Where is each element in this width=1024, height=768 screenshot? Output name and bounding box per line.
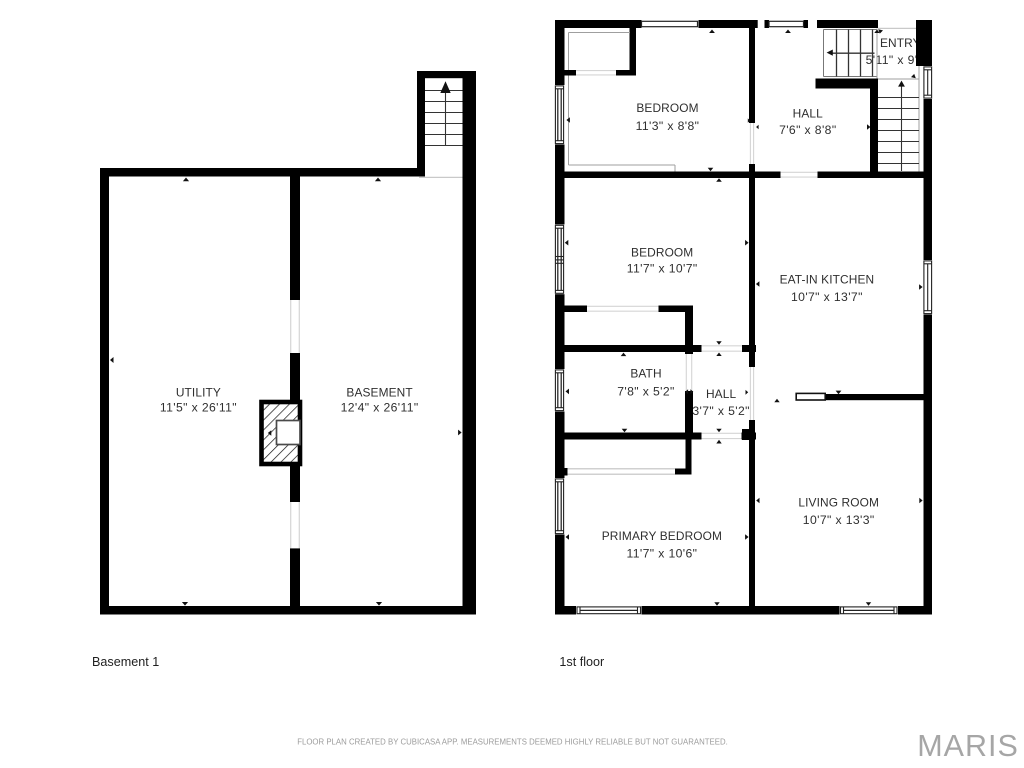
svg-text:11'7" x 10'6": 11'7" x 10'6": [626, 546, 697, 560]
svg-text:BATH: BATH: [630, 367, 661, 381]
svg-text:ENTRY: ENTRY: [880, 36, 921, 50]
svg-text:Basement 1: Basement 1: [92, 655, 159, 669]
svg-text:MARIS: MARIS: [917, 729, 1019, 763]
svg-text:BEDROOM: BEDROOM: [631, 245, 693, 259]
svg-text:FLOOR PLAN CREATED BY CUBICASA: FLOOR PLAN CREATED BY CUBICASA APP. MEAS…: [297, 738, 728, 747]
svg-text:7'6" x 8'8": 7'6" x 8'8": [779, 123, 836, 137]
svg-text:BASEMENT: BASEMENT: [346, 385, 412, 399]
svg-text:12'4" x 26'11": 12'4" x 26'11": [341, 400, 419, 414]
svg-text:HALL: HALL: [706, 387, 736, 401]
svg-text:LIVING ROOM: LIVING ROOM: [798, 495, 879, 509]
svg-text:1st floor: 1st floor: [559, 655, 604, 669]
svg-text:10'7" x 13'7": 10'7" x 13'7": [791, 290, 863, 304]
svg-text:EAT-IN KITCHEN: EAT-IN KITCHEN: [780, 273, 875, 287]
svg-text:11'7" x 10'7": 11'7" x 10'7": [627, 262, 698, 276]
svg-text:11'5" x 26'11": 11'5" x 26'11": [160, 400, 237, 414]
svg-text:3'7" x 5'2": 3'7" x 5'2": [692, 404, 749, 418]
svg-text:11'3" x 8'8": 11'3" x 8'8": [636, 119, 700, 133]
svg-text:10'7" x 13'3": 10'7" x 13'3": [803, 513, 875, 527]
svg-text:7'8" x 5'2": 7'8" x 5'2": [617, 385, 674, 399]
svg-text:HALL: HALL: [793, 107, 823, 121]
svg-text:BEDROOM: BEDROOM: [636, 101, 698, 115]
svg-text:UTILITY: UTILITY: [176, 385, 221, 399]
svg-text:PRIMARY BEDROOM: PRIMARY BEDROOM: [602, 529, 722, 543]
